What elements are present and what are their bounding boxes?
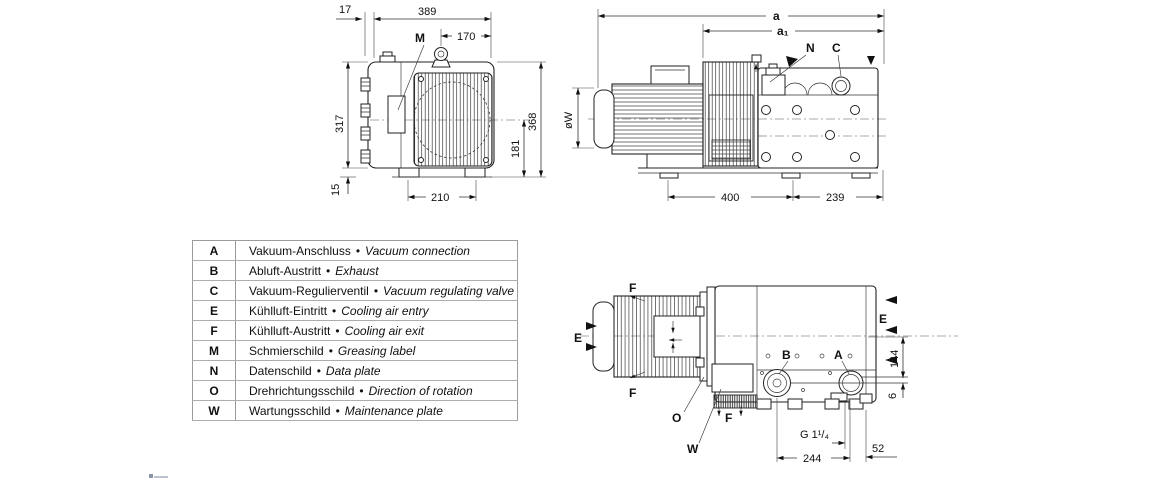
- maintenance-plate: [712, 364, 753, 392]
- legend-desc: Schmierschild•Greasing label: [236, 341, 518, 361]
- label-b: B: [782, 348, 791, 362]
- label-e-right: E: [879, 312, 887, 326]
- cooling-air-arrow-icon: [867, 56, 875, 65]
- legend-desc: Abluft-Austritt•Exhaust: [236, 261, 518, 281]
- legend-key: O: [193, 381, 236, 401]
- label-f-bottom: F: [629, 386, 636, 400]
- legend-table: A Vakuum-Anschluss•Vacuum connection B A…: [192, 240, 518, 421]
- legend-row: C Vakuum-Regulierventil•Vacuum regulatin…: [193, 281, 518, 301]
- legend-key: F: [193, 321, 236, 341]
- label-f-exhaust: F: [725, 411, 732, 425]
- legend-row: O Drehrichtungsschild•Direction of rotat…: [193, 381, 518, 401]
- dim-height-368: 368: [527, 113, 539, 131]
- label-a: A: [834, 348, 843, 362]
- bullet-separator: •: [326, 264, 330, 278]
- label-c: C: [832, 41, 841, 55]
- base-side: [638, 168, 878, 178]
- dim-offset-6: 6: [887, 393, 899, 399]
- legend-row: A Vakuum-Anschluss•Vacuum connection: [193, 241, 518, 261]
- motor-terminal-box: [651, 66, 689, 84]
- legend-row: E Kühlluft-Eintritt•Cooling air entry: [193, 301, 518, 321]
- bullet-separator: •: [374, 284, 378, 298]
- motor-side: [594, 66, 703, 168]
- label-o: O: [672, 411, 681, 425]
- dim-thread-g114: G 1¹/₄: [800, 429, 829, 441]
- bullet-separator: •: [356, 244, 360, 258]
- bullet-separator: •: [336, 404, 340, 418]
- lifting-eye-icon: [432, 48, 450, 68]
- legend-row: M Schmierschild•Greasing label: [193, 341, 518, 361]
- legend-key: N: [193, 361, 236, 381]
- dim-offset-17: 17: [339, 4, 351, 16]
- gas-ballast-knobs: [361, 78, 370, 163]
- oil-filler-cap-icon: [380, 52, 395, 62]
- pump-body-side: [758, 64, 878, 168]
- legend-row: F Kühlluft-Austritt•Cooling air exit: [193, 321, 518, 341]
- partial-logo-mark: [149, 474, 169, 479]
- legend-row: W Wartungsschild•Maintenance plate: [193, 401, 518, 421]
- dim-width-389: 389: [418, 6, 436, 18]
- dim-foot-15: 15: [330, 184, 342, 196]
- legend-key: E: [193, 301, 236, 321]
- label-m: M: [415, 31, 425, 45]
- label-c-leader: [838, 55, 841, 76]
- bullet-separator: •: [317, 364, 321, 378]
- motor-rating-plate: [654, 316, 700, 357]
- legend-desc: Kühlluft-Austritt•Cooling air exit: [236, 321, 518, 341]
- bullet-separator: •: [332, 304, 336, 318]
- cooling-in-arrow-icon: [885, 326, 897, 334]
- legend-desc: Drehrichtungsschild•Direction of rotatio…: [236, 381, 518, 401]
- exhaust-port-b-icon: [764, 370, 791, 397]
- label-f-top: F: [629, 281, 636, 295]
- pump-drawings: M 17 389 170 317 15: [0, 0, 1160, 480]
- dim-motor-dia: øW: [563, 111, 575, 129]
- dim-axis-181: 181: [510, 140, 522, 158]
- legend-desc: Wartungsschild•Maintenance plate: [236, 401, 518, 421]
- motor-top: [593, 296, 700, 377]
- dim-pump-a1: a₁: [777, 24, 789, 38]
- dim-height-317: 317: [334, 115, 346, 133]
- exhaust-grille: [714, 395, 757, 408]
- dim-edge-52: 52: [872, 443, 884, 455]
- legend-desc: Kühlluft-Eintritt•Cooling air entry: [236, 301, 518, 321]
- greasing-label-plate: [388, 96, 405, 133]
- legend-key: M: [193, 341, 236, 361]
- technical-drawing-page: M 17 389 170 317 15: [0, 0, 1160, 480]
- legend-key: C: [193, 281, 236, 301]
- legend-row: B Abluft-Austritt•Exhaust: [193, 261, 518, 281]
- pump-body-top: [712, 286, 876, 408]
- vacuum-regulating-valve-icon: [832, 77, 850, 95]
- legend-row: N Datenschild•Data plate: [193, 361, 518, 381]
- bullet-separator: •: [329, 344, 333, 358]
- legend-desc: Vakuum-Anschluss•Vacuum connection: [236, 241, 518, 261]
- dim-overall-a: a: [773, 9, 780, 23]
- side-view-drawing: N C a a₁ øW 400: [563, 9, 886, 204]
- label-o-leader: [684, 377, 704, 412]
- legend-key: A: [193, 241, 236, 261]
- fan-grille: [414, 73, 492, 166]
- bullet-separator: •: [359, 384, 363, 398]
- dim-body-400: 400: [721, 192, 739, 204]
- housing-bolts: [762, 106, 860, 162]
- legend-key: B: [193, 261, 236, 281]
- legend-key: W: [193, 401, 236, 421]
- dim-eye-170: 170: [457, 31, 475, 43]
- fan-shroud-side: [703, 55, 761, 166]
- front-view-drawing: M 17 389 170 317 15: [330, 4, 546, 204]
- top-view-drawing: E E F F F O W B A 144 6: [574, 281, 958, 465]
- label-e-left: E: [574, 331, 582, 345]
- dim-span-244: 244: [803, 453, 821, 465]
- pump-feet-front: [392, 168, 492, 177]
- dim-height-144: 144: [889, 350, 901, 368]
- label-w-leader: [699, 389, 721, 443]
- motor-pedestal: [647, 154, 703, 168]
- legend-desc: Vakuum-Regulierventil•Vacuum regulating …: [236, 281, 518, 301]
- label-n: N: [806, 41, 815, 55]
- dim-rear-239: 239: [826, 192, 844, 204]
- cooling-in-arrow-icon: [885, 296, 897, 304]
- bullet-separator: •: [335, 324, 339, 338]
- label-w: W: [687, 442, 699, 456]
- legend-desc: Datenschild•Data plate: [236, 361, 518, 381]
- dim-feet-210: 210: [431, 192, 449, 204]
